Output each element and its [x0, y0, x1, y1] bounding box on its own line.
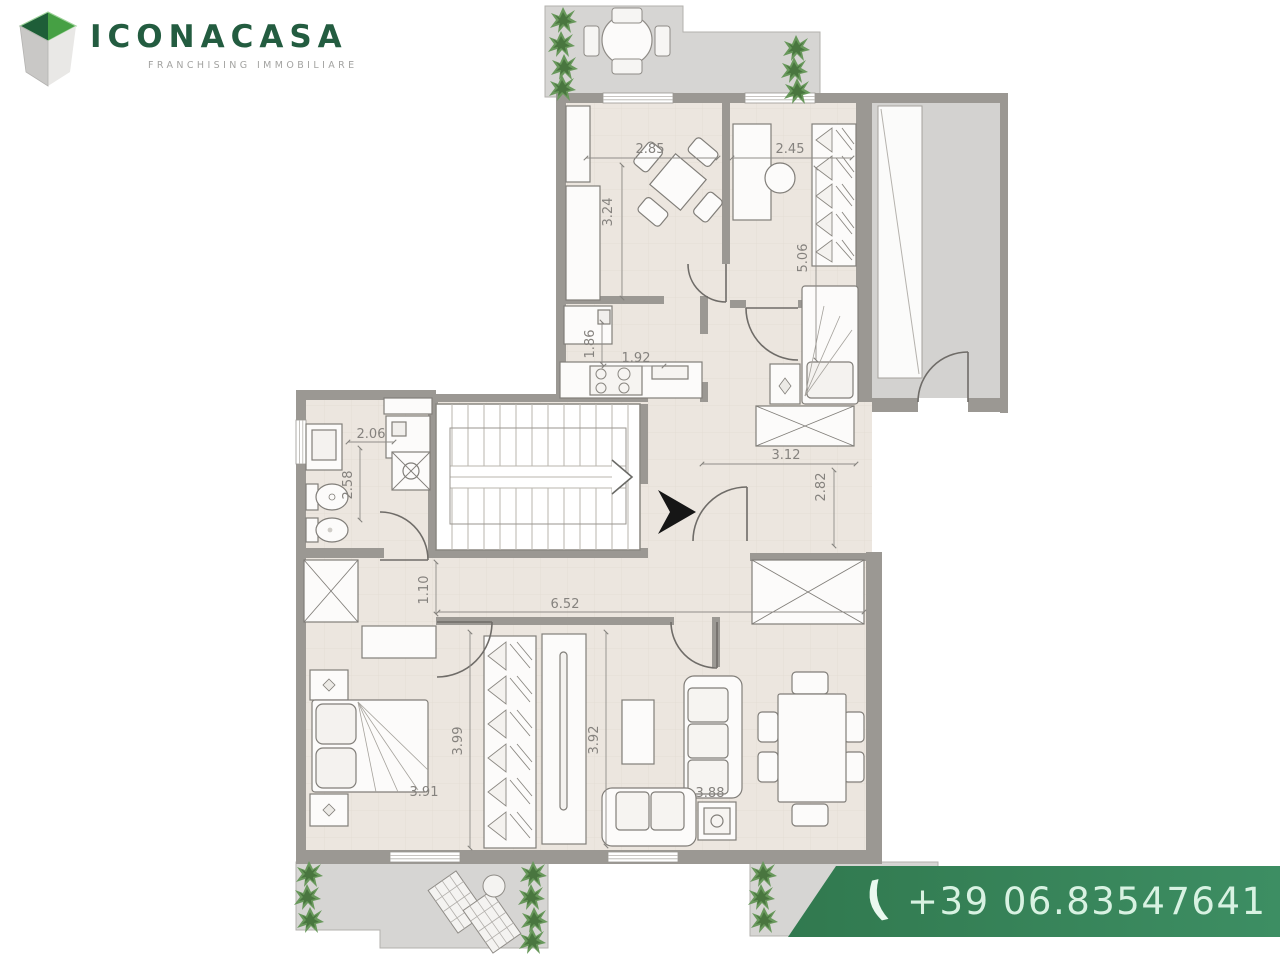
staircase	[436, 404, 640, 550]
dim-bath-width: 2.06	[357, 427, 386, 442]
brand-logo: ICONACASA FRANCHISING IMMOBILIARE	[16, 10, 358, 88]
desk-chair	[765, 163, 795, 193]
dim-corridor-width: 6.52	[551, 597, 580, 612]
terrace-side-table	[483, 875, 505, 897]
sofa-small	[602, 788, 696, 846]
dim-bedroom-width: 3.91	[410, 785, 439, 800]
dim-kitchen-width: 1.92	[622, 351, 651, 366]
dim-kitchen-height: 1.86	[583, 330, 598, 359]
wardrobe-hanging	[484, 636, 536, 848]
sofa-large	[684, 676, 742, 798]
dining-table	[778, 694, 846, 802]
floorplan-page: ICONACASA FRANCHISING IMMOBILIARE	[0, 0, 1280, 960]
phone-number: +39 06.83547641	[907, 880, 1267, 923]
dim-bedroom-height: 3.99	[451, 727, 466, 756]
bidet	[306, 518, 348, 542]
dim-study-width: 2.85	[636, 142, 665, 157]
terrace-top	[545, 6, 820, 97]
dim-room2-height: 5.06	[796, 244, 811, 273]
dim-living-height: 3.92	[587, 726, 602, 755]
dim-hall-width: 3.12	[772, 448, 801, 463]
brand-tagline: FRANCHISING IMMOBILIARE	[148, 60, 358, 71]
dim-bath-height: 2.58	[341, 471, 356, 500]
floor-plan: 2.85 3.24 2.45 5.06 1.86 1.92 2.06 2.58 …	[0, 0, 1280, 960]
dim-study-height: 3.24	[601, 198, 616, 227]
dim-hall-door: 1.10	[417, 576, 432, 605]
dim-living-width: 3.88	[696, 786, 725, 801]
coffee-table	[698, 802, 736, 840]
dim-room2-width: 2.45	[776, 142, 805, 157]
dim-hall-height: 2.82	[814, 473, 829, 502]
cube-logo-icon	[16, 10, 80, 88]
tv-cabinet	[622, 700, 654, 764]
brand-name: ICONACASA	[90, 22, 358, 53]
desk	[733, 124, 771, 220]
kitchen	[560, 362, 702, 398]
dresser	[362, 626, 436, 658]
phone-receiver-icon: (	[861, 874, 893, 924]
external-stair-strip	[878, 106, 922, 378]
phone-banner: ( +39 06.83547641	[788, 866, 1280, 937]
